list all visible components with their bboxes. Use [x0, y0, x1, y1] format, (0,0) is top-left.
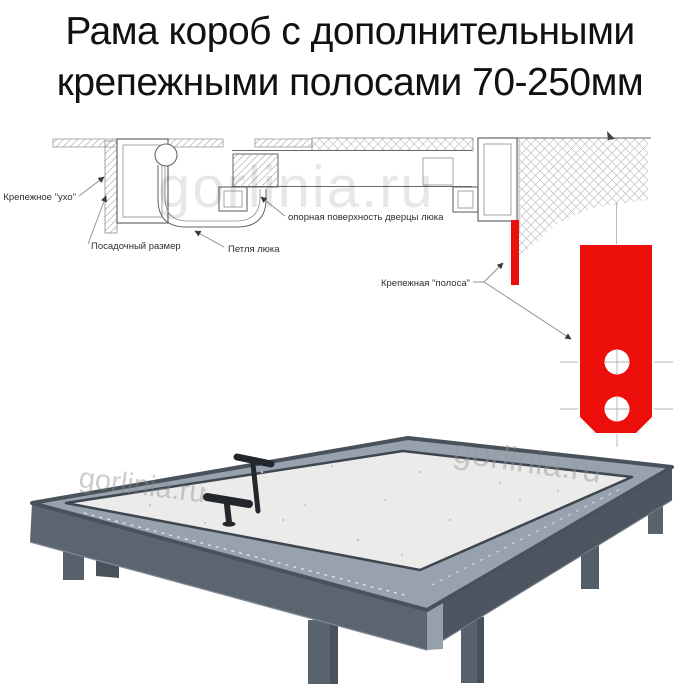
- title-line-2: крепежными полосами 70-250мм: [0, 57, 700, 108]
- label-mount-size: Посадочный размер: [91, 241, 181, 252]
- ceiling-tick-arrow-icon: [607, 131, 615, 140]
- label-hinge: Петля люка: [228, 244, 280, 255]
- leader-strip-section: [484, 263, 503, 282]
- t-handle-near-foot: [223, 521, 236, 526]
- leader-mount-size: [88, 196, 106, 244]
- leg-front-right-edge: [477, 617, 484, 683]
- leader-strip-detail: [484, 282, 571, 339]
- mounting-strip-red: [511, 220, 519, 285]
- product-photo: gorlinia.ru gorlinia.ru: [0, 425, 700, 700]
- product-image: Рама короб с дополнительными крепежными …: [0, 0, 700, 700]
- slab-crosshatch-band: [312, 138, 473, 151]
- leg-front-left-edge: [330, 620, 338, 684]
- label-mounting-strip: Крепежная "полоса": [381, 278, 470, 289]
- mounting-ear-plate: [105, 141, 117, 233]
- product-title: Рама короб с дополнительными крепежными …: [0, 6, 700, 108]
- title-line-1: Рама короб с дополнительными: [0, 6, 700, 57]
- watermark-drawing: gorlinia.ru: [158, 155, 435, 220]
- hinge-mount-square-right: [453, 187, 478, 212]
- leader-mounting-ear: [79, 177, 104, 196]
- label-mounting-ear: Крепежное "ухо": [3, 192, 76, 203]
- technical-drawing: Крепежное "ухо" Посадочный размер Петля …: [0, 125, 700, 455]
- leader-hinge: [195, 231, 224, 247]
- wall-crosshatch: [519, 138, 648, 257]
- ceiling-hatch-middle: [255, 139, 312, 147]
